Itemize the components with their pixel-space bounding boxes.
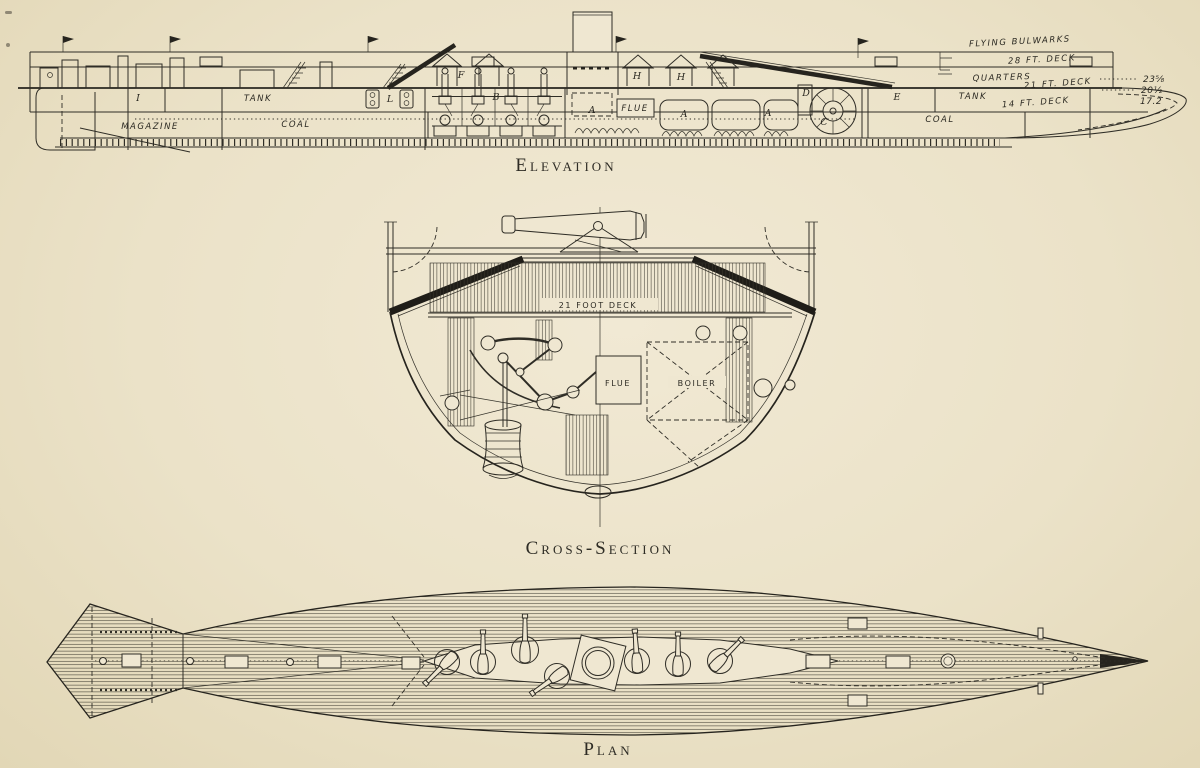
letter-a: A — [680, 109, 688, 120]
ventilator-cowls — [433, 54, 738, 86]
capstan-cylinder — [483, 420, 523, 479]
engine-unit — [467, 68, 489, 136]
stern-wheel — [810, 88, 856, 134]
elevation-deck-structures — [40, 36, 1092, 88]
cross-section-view: 21 FOOT DECK FLUE BOILER — [0, 195, 1200, 540]
boiler-flue-group — [572, 85, 812, 136]
funnel — [567, 12, 618, 95]
label-tank-fwd: TANK — [244, 94, 272, 104]
letter-h: H — [632, 71, 642, 82]
letter-c: C — [820, 117, 828, 128]
letter-l: L — [386, 94, 393, 105]
label-21-foot-deck: 21 FOOT DECK — [559, 301, 638, 310]
elevation-view: FLYING BULWARKS 28 FT. DECK QUARTERS 21 … — [0, 0, 1200, 160]
label-flue-elevation: FLUE — [621, 104, 648, 114]
letter-i: I — [135, 93, 140, 104]
drawing-sheet: FLYING BULWARKS 28 FT. DECK QUARTERS 21 … — [0, 0, 1200, 768]
label-flue-section: FLUE — [605, 379, 631, 388]
elevation-caption: Elevation — [0, 155, 1132, 177]
letter-a: A — [764, 108, 772, 119]
draft-depth-3: 17.2 — [1140, 97, 1162, 107]
deck-gun — [502, 211, 646, 252]
label-flying-bulwarks: FLYING BULWARKS — [969, 34, 1071, 49]
draft-depth-1: 23⅝ — [1143, 75, 1165, 85]
letter-h: H — [676, 72, 686, 83]
letter-e: E — [893, 92, 901, 103]
label-magazine: MAGAZINE — [121, 122, 179, 132]
flue-compartment: FLUE — [596, 356, 641, 404]
flag-post — [63, 36, 869, 58]
cross-section-caption: Cross-Section — [0, 538, 1200, 560]
engine-unit — [533, 68, 555, 136]
draft-depth-2: 20½ — [1141, 86, 1163, 96]
label-coal-fwd: COAL — [281, 120, 310, 130]
letter-b: B — [492, 92, 500, 103]
label-21ft-deck: 21 FT. DECK — [1024, 77, 1092, 92]
plan-caption: Plan — [8, 739, 1200, 761]
draft-depth-marks: 23⅝ 20½ 17.2 — [1100, 75, 1165, 107]
engine-unit — [500, 68, 522, 136]
plan-view — [0, 565, 1200, 745]
label-boiler: BOILER — [678, 379, 717, 388]
label-coal-aft: COAL — [925, 115, 954, 125]
label-quarters: QUARTERS — [973, 72, 1032, 84]
label-tank-aft: TANK — [959, 92, 987, 102]
letter-f: F — [457, 70, 465, 81]
letter-d: D — [801, 88, 810, 99]
boiler-compartment: BOILER — [647, 326, 795, 468]
letter-a: A — [588, 105, 596, 116]
label-14ft-deck: 14 FT. DECK — [1002, 96, 1070, 111]
label-28ft-deck: 28 FT. DECK — [1008, 53, 1076, 67]
